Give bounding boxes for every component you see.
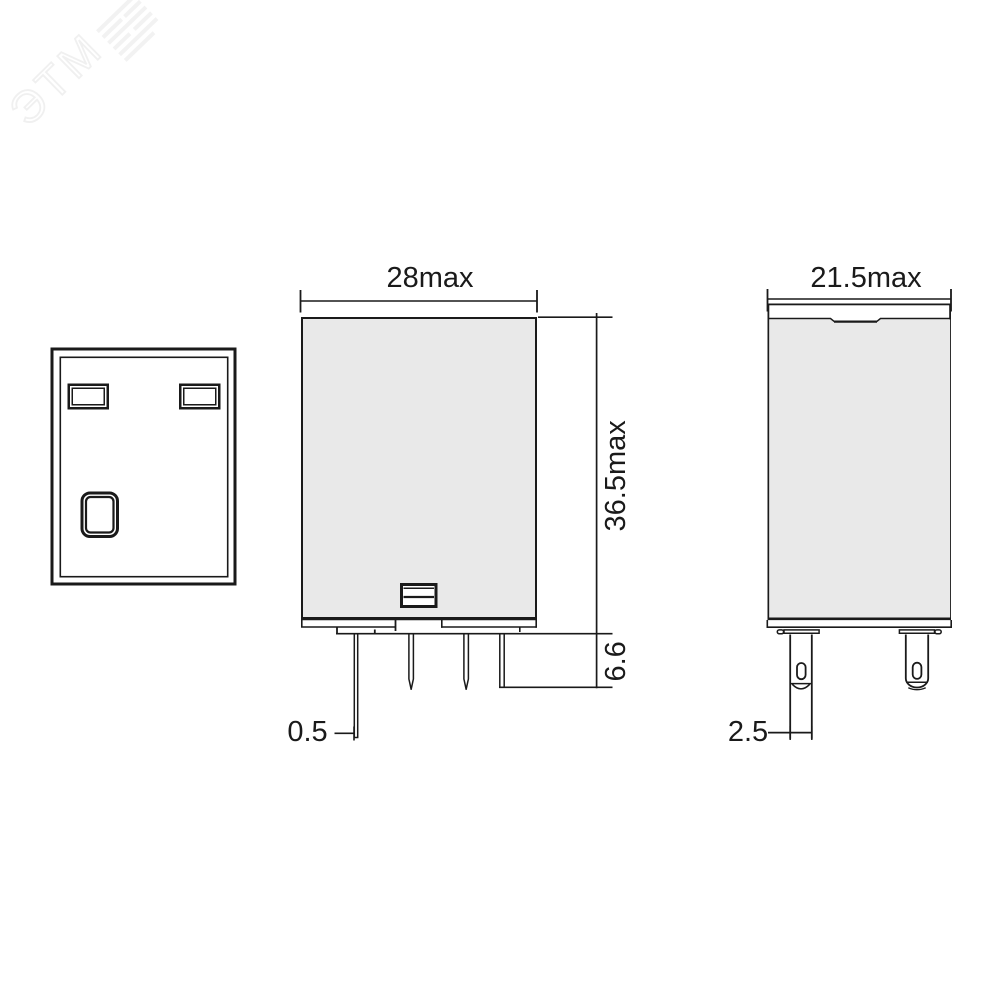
svg-text:36.5max: 36.5max — [600, 420, 632, 532]
svg-text:2.5: 2.5 — [728, 716, 768, 748]
svg-text:6.6: 6.6 — [600, 641, 632, 681]
svg-text:28max: 28max — [386, 262, 474, 294]
svg-text:0.5: 0.5 — [287, 716, 327, 748]
svg-text:21.5max: 21.5max — [810, 262, 922, 294]
